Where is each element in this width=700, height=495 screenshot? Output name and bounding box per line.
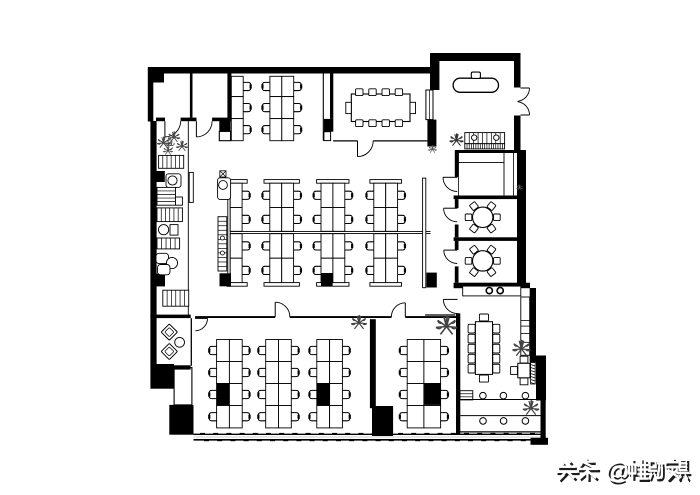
svg-text:@: @	[605, 458, 629, 485]
